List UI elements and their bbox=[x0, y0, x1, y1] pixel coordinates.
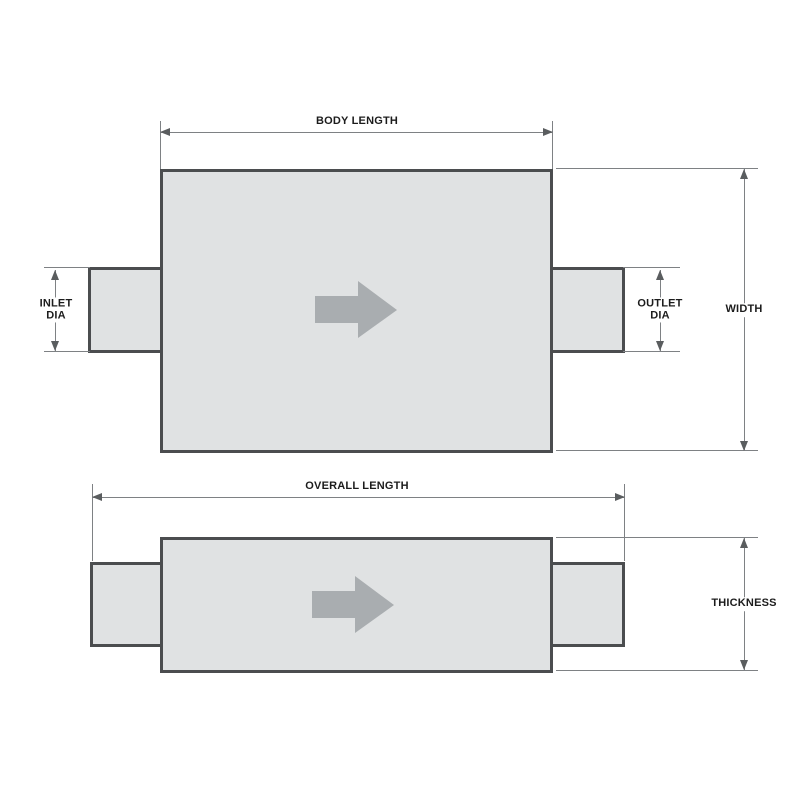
extension-line bbox=[556, 450, 758, 451]
thickness-label: THICKNESS bbox=[707, 597, 780, 611]
overall-length-label: OVERALL LENGTH bbox=[301, 480, 412, 494]
outlet-dia-label-line2: DIA bbox=[650, 309, 670, 321]
extension-line bbox=[556, 670, 758, 671]
arrow-up-icon bbox=[51, 270, 59, 280]
extension-line bbox=[623, 267, 680, 268]
outlet-pipe bbox=[550, 562, 625, 647]
extension-line bbox=[556, 168, 758, 169]
arrow-right-icon bbox=[615, 493, 625, 501]
arrow-up-icon bbox=[740, 169, 748, 179]
inlet-dia-label-line2: DIA bbox=[46, 309, 66, 321]
arrow-down-icon bbox=[740, 660, 748, 670]
outlet-dia-label-line1: OUTLET bbox=[637, 297, 682, 309]
inlet-dia-label-line1: INLET bbox=[40, 297, 73, 309]
arrow-up-icon bbox=[656, 270, 664, 280]
inlet-pipe bbox=[90, 562, 163, 647]
dimension-line bbox=[160, 132, 553, 133]
extension-line bbox=[623, 351, 680, 352]
extension-line bbox=[44, 351, 90, 352]
arrow-right-icon bbox=[543, 128, 553, 136]
muffler-dimension-diagram: BODY LENGTH INLET DIA OUTLET DIA bbox=[0, 0, 800, 800]
flow-direction-arrow-icon bbox=[315, 281, 397, 339]
inlet-pipe bbox=[88, 267, 163, 353]
extension-line bbox=[556, 537, 758, 538]
arrow-left-icon bbox=[92, 493, 102, 501]
arrow-left-icon bbox=[160, 128, 170, 136]
dimension-line bbox=[92, 497, 625, 498]
arrow-down-icon bbox=[740, 441, 748, 451]
body-length-label: BODY LENGTH bbox=[312, 115, 402, 129]
width-label: WIDTH bbox=[721, 303, 766, 317]
arrow-down-icon bbox=[656, 341, 664, 351]
flow-direction-arrow-icon bbox=[312, 576, 394, 634]
outlet-dia-label: OUTLET DIA bbox=[633, 297, 686, 322]
inlet-dia-label: INLET DIA bbox=[36, 297, 77, 322]
extension-line bbox=[44, 267, 90, 268]
arrow-down-icon bbox=[51, 341, 59, 351]
arrow-up-icon bbox=[740, 538, 748, 548]
outlet-pipe bbox=[550, 267, 625, 353]
